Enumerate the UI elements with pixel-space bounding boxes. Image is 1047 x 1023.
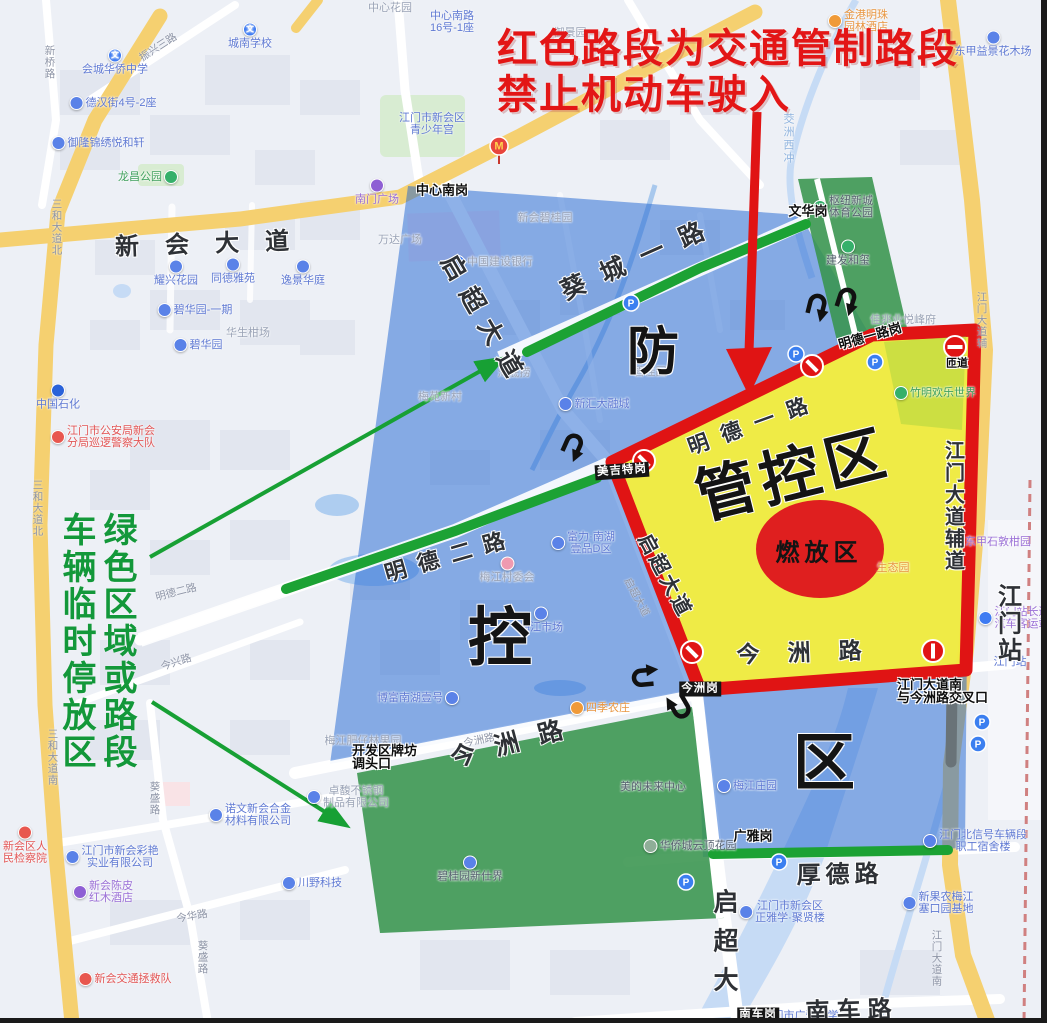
- poi-icon: [79, 972, 93, 986]
- road-label: 今兴路: [159, 650, 194, 674]
- poi-icon: [51, 384, 65, 398]
- poi-label: 博富南湖壹号: [377, 691, 459, 705]
- poi-icon: [739, 905, 753, 919]
- poi-label: 川野科技: [282, 876, 342, 890]
- poi-label: 梅苑新村: [418, 391, 462, 403]
- traffic-control-notice: 红色路段为交通管制路段 禁止机动车驶入: [497, 26, 959, 118]
- road-label: 三和大道北: [50, 198, 65, 256]
- poi-icon: [296, 260, 310, 274]
- poi-label: 耀兴花园: [154, 260, 198, 287]
- image-bottom-border: [0, 1018, 1047, 1023]
- road-label: 三和大道北: [31, 479, 46, 537]
- poi-icon: [500, 557, 514, 571]
- checkpoint-label: 江门大道南与今洲路交叉口: [897, 678, 988, 704]
- road-label: 葵盛路: [148, 781, 163, 816]
- checkpoint-label: 文华岗: [788, 205, 827, 218]
- poi-label: 东甲益景花木场: [955, 31, 1032, 58]
- blue-zone-name-char: 区: [793, 712, 855, 802]
- checkpoint-label: 匝道: [946, 358, 968, 371]
- poi-label: 新会交通拯救队: [79, 972, 172, 986]
- poi-icon: [559, 397, 573, 411]
- road-label: 振兴三路: [136, 29, 179, 64]
- poi-label: 梅江庄园: [717, 779, 777, 793]
- firework-zone-name: 燃放区: [776, 533, 863, 568]
- notice-line-1: 红色路段为交通管制路段: [497, 26, 959, 72]
- poi-icon: [209, 808, 223, 822]
- poi-label: 华生柑场: [226, 327, 270, 339]
- notice-line-2: 禁止机动车驶入: [497, 72, 959, 118]
- poi-label: 中国石化: [36, 384, 80, 411]
- poi-icon: [717, 779, 731, 793]
- poi-icon: [986, 31, 1000, 45]
- road-label: 葵盛路: [196, 940, 211, 975]
- parking-note-col-1: 绿色区域或路段: [97, 512, 135, 787]
- checkpoint-label: 广雅岗: [733, 830, 772, 843]
- poi-icon: [52, 136, 66, 150]
- poi-icon: [445, 691, 459, 705]
- road-label: 江门大道辅: [975, 291, 990, 349]
- poi-icon: [51, 430, 65, 444]
- poi-label: 江门市新会区青少年宫: [399, 112, 465, 136]
- poi-label: 江门北信号车辆段职工宿舍楼: [923, 829, 1027, 853]
- poi-label: 御隆锦绣悦和轩: [52, 136, 145, 150]
- checkpoint-label: 中心南岗: [416, 184, 468, 197]
- annotated-traffic-map: PPPPPPPM 文会城华侨中学文城南学校德汉街4号-2座御隆锦绣悦和轩龙昌公园…: [0, 0, 1047, 1023]
- major-road-name: 启超大: [705, 889, 741, 1006]
- poi-label: 万达广场: [378, 234, 422, 246]
- poi-icon: [73, 885, 87, 899]
- school-icon: 文: [108, 49, 122, 63]
- poi-label: 生态园: [877, 562, 910, 574]
- major-road-name: 江门站: [990, 584, 1025, 665]
- poi-icon: [644, 839, 658, 853]
- poi-label: 新果农梅江塞口园基地: [903, 891, 974, 915]
- major-road-name: 厚德路: [796, 854, 884, 891]
- poi-label: 卓馥不锈钢制品有限公司: [307, 785, 389, 809]
- poi-icon: [903, 896, 917, 910]
- major-road-name: 新会大道: [114, 220, 315, 262]
- checkpoint-label: 美吉特岗: [595, 462, 650, 481]
- checkpoint-label: 今洲岗: [679, 682, 721, 697]
- poi-label: 富力·南湖壹品D区: [551, 531, 615, 555]
- poi-label: 同德雅苑: [211, 258, 255, 285]
- parking-zone-note: 车辆临时停放区 绿色区域或路段: [56, 512, 135, 787]
- poi-label: 新会碧桂园: [518, 212, 573, 224]
- school-icon: 文: [243, 23, 257, 37]
- labels-layer: 文会城华侨中学文城南学校德汉街4号-2座御隆锦绣悦和轩龙昌公园中心花园中心南路1…: [0, 0, 1047, 1023]
- poi-label: 四季农庄: [570, 701, 630, 715]
- major-road-name: 今洲路: [736, 630, 890, 669]
- road-label: 新桥路: [43, 45, 58, 80]
- major-road-name: 今洲路: [446, 705, 586, 775]
- poi-label: 竹明欢乐世界: [894, 386, 976, 400]
- poi-label: 碧桂园新仕界: [437, 856, 503, 883]
- poi-label: 中心花园: [368, 2, 412, 14]
- road-label: 江门大道南: [930, 929, 945, 987]
- poi-icon: [551, 536, 565, 550]
- poi-label: 华侨城云顶花园: [644, 839, 737, 853]
- poi-icon: [370, 179, 384, 193]
- poi-label: 建发和玺: [826, 240, 870, 267]
- poi-label: 江门市新会区正雅学·聚贤楼: [739, 900, 825, 924]
- poi-label: 美的未来中心: [620, 781, 686, 793]
- checkpoint-label: 开发区牌坊调头口: [352, 744, 417, 770]
- poi-label: 南门广场: [355, 179, 399, 206]
- poi-icon: [841, 240, 855, 254]
- poi-icon: [282, 876, 296, 890]
- parking-note-col-2: 车辆临时停放区: [56, 512, 94, 787]
- poi-icon: [66, 850, 80, 864]
- major-road-name: 江门大道辅道: [939, 440, 968, 572]
- poi-label: 新会区人民检察院: [3, 826, 47, 865]
- poi-icon: [70, 96, 84, 110]
- poi-icon: [307, 790, 321, 804]
- blue-zone-name-char: 防: [627, 310, 679, 385]
- poi-label: 茭洲西冲: [782, 113, 794, 165]
- poi-label: 梅江村委会: [480, 557, 535, 584]
- poi-icon: [158, 303, 172, 317]
- poi-icon: [174, 338, 188, 352]
- poi-icon: [169, 260, 183, 274]
- poi-label: 德汉街4号-2座: [70, 96, 157, 110]
- poi-label: 东甲石敦柑园: [965, 536, 1031, 548]
- poi-label: 诺文新会合金材料有限公司: [209, 803, 291, 827]
- poi-icon: [894, 386, 908, 400]
- poi-label: 文城南学校: [228, 23, 272, 50]
- poi-label: 江门市新会彩艳实业有限公司: [66, 845, 159, 869]
- poi-icon: [164, 170, 178, 184]
- poi-label: 碧华园: [174, 338, 223, 352]
- road-label: 明德二路: [154, 580, 198, 605]
- poi-label: 江门市公安局新会分局巡逻警察大队: [51, 425, 155, 449]
- image-right-border: [1041, 0, 1047, 1023]
- poi-icon: [534, 607, 548, 621]
- poi-label: 碧华园-一期: [158, 303, 233, 317]
- poi-label: 逸景华庭: [281, 260, 325, 287]
- poi-icon: [226, 258, 240, 272]
- poi-icon: [463, 856, 477, 870]
- poi-label: 新会陈皮红木酒店: [73, 880, 133, 904]
- blue-zone-name-char: 控: [468, 587, 532, 679]
- road-label: 启超大道: [621, 575, 654, 619]
- major-road-name: 葵城一路: [554, 205, 726, 308]
- road-label: 今华路: [175, 906, 209, 926]
- poi-label: 新汇大融城: [559, 397, 630, 411]
- poi-icon: [923, 834, 937, 848]
- poi-label: 龙昌公园: [118, 170, 178, 184]
- poi-label: 中心南路16号-1座: [430, 10, 474, 34]
- poi-icon: [18, 826, 32, 840]
